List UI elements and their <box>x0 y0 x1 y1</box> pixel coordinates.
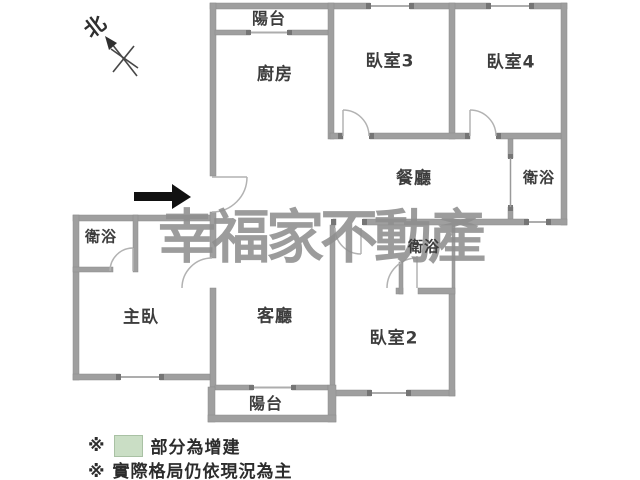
label-bath-right: 衛浴 <box>523 167 555 188</box>
legend-disclaimer-text: ※ 實際格局仍依現況為主 <box>88 457 292 480</box>
label-kitchen: 廚房 <box>257 60 293 85</box>
label-dining: 餐廳 <box>396 164 432 189</box>
legend-marker: ※ <box>88 436 106 456</box>
label-bedroom4: 臥室4 <box>487 48 536 73</box>
legend-line-disclaimer: ※ 實際格局仍依現況為主 <box>88 457 292 480</box>
label-living: 客廳 <box>257 302 293 327</box>
label-bath-middle: 衛浴 <box>408 236 440 257</box>
legend-addition-text: 部分為增建 <box>151 433 241 458</box>
legend-line-addition: ※ 部分為增建 <box>88 433 241 458</box>
label-balcony-bottom: 陽台 <box>249 390 283 414</box>
north-symbol <box>105 36 138 76</box>
label-bedroom2: 臥室2 <box>370 324 419 349</box>
label-bedroom3: 臥室3 <box>366 47 415 72</box>
label-balcony-top: 陽台 <box>252 5 286 29</box>
label-bath-left: 衛浴 <box>85 226 117 247</box>
floorplan-page: 幸福家不動產 陽台 廚房 臥室3 臥室4 餐廳 衛浴 衛浴 衛浴 主臥 客廳 臥… <box>0 0 640 480</box>
legend-addition-swatch <box>114 435 143 457</box>
label-master: 主臥 <box>123 303 159 328</box>
